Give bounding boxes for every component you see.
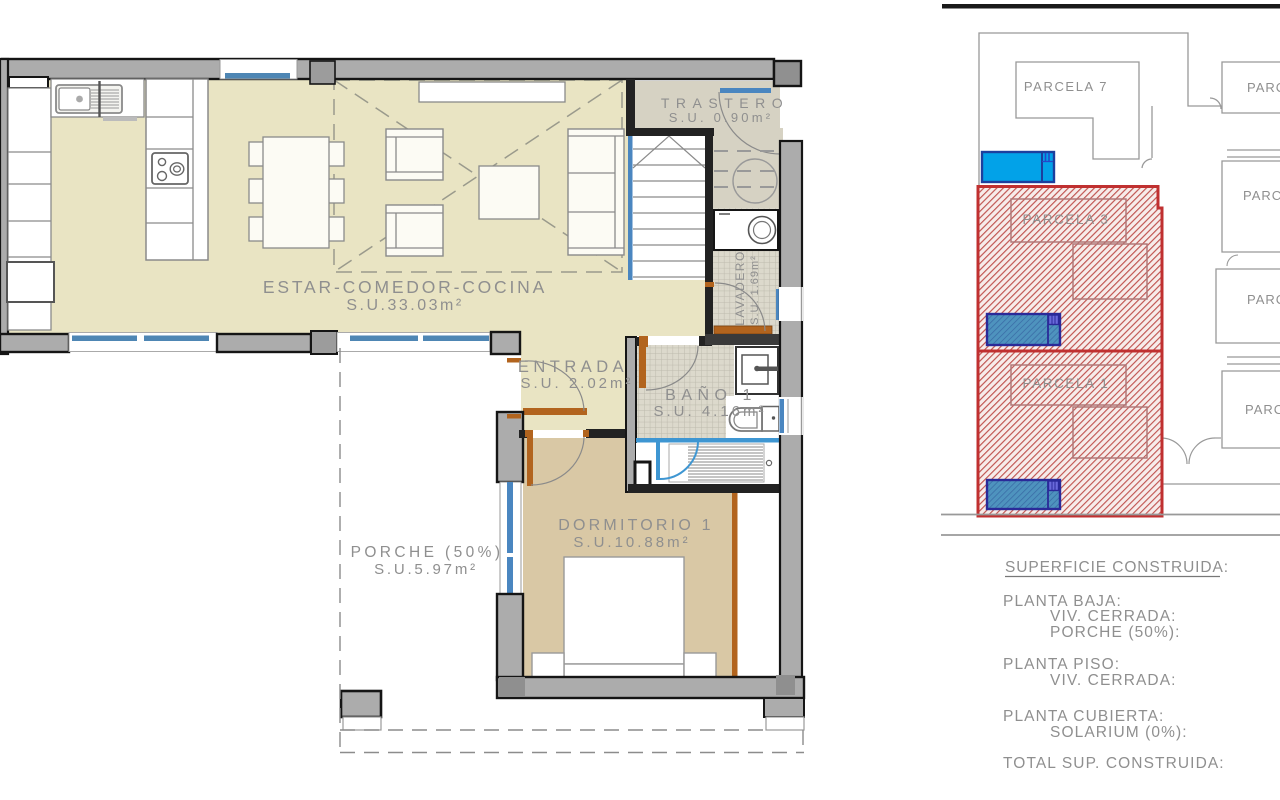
svg-text:LAVADERO: LAVADERO — [733, 250, 747, 326]
svg-text:SOLARIUM (0%):: SOLARIUM (0%): — [1050, 724, 1188, 741]
svg-text:TOTAL SUP. CONSTRUIDA:: TOTAL SUP. CONSTRUIDA: — [1003, 755, 1225, 772]
svg-text:PARC: PARC — [1247, 292, 1280, 307]
svg-text:S.U.33.03m²: S.U.33.03m² — [346, 297, 463, 314]
svg-text:PARCELA 7: PARCELA 7 — [1024, 79, 1108, 94]
svg-text:BAÑO 1: BAÑO 1 — [665, 384, 757, 404]
svg-text:PARC: PARC — [1243, 188, 1280, 203]
svg-text:PARC: PARC — [1247, 80, 1280, 95]
svg-text:S.U.10.88m²: S.U.10.88m² — [573, 534, 690, 551]
svg-text:PARCELA 1: PARCELA 1 — [1023, 376, 1110, 391]
svg-text:DORMITORIO 1: DORMITORIO 1 — [558, 517, 713, 534]
svg-text:PARCELA 3: PARCELA 3 — [1023, 212, 1110, 227]
svg-text:ESTAR-COMEDOR-COCINA: ESTAR-COMEDOR-COCINA — [263, 277, 547, 297]
svg-text:VIV. CERRADA:: VIV. CERRADA: — [1050, 672, 1177, 689]
svg-text:PORCHE (50%): PORCHE (50%) — [351, 544, 504, 561]
svg-text:VIV. CERRADA:: VIV. CERRADA: — [1050, 608, 1177, 625]
svg-text:ENTRADA: ENTRADA — [518, 358, 628, 376]
svg-text:S.U. 0.90m²: S.U. 0.90m² — [669, 110, 774, 125]
svg-text:PARC: PARC — [1245, 402, 1280, 417]
svg-text:S.U. 4.16m²: S.U. 4.16m² — [653, 403, 766, 420]
svg-text:SUPERFICIE CONSTRUIDA:: SUPERFICIE CONSTRUIDA: — [1005, 559, 1229, 576]
svg-text:S.U. 1.69m²: S.U. 1.69m² — [749, 255, 761, 325]
svg-text:TRASTERO: TRASTERO — [661, 95, 789, 111]
svg-text:S.U. 2.02m²: S.U. 2.02m² — [520, 375, 633, 392]
svg-text:PORCHE (50%):: PORCHE (50%): — [1050, 624, 1181, 641]
svg-text:S.U.5.97m²: S.U.5.97m² — [374, 561, 478, 578]
svg-text:PLANTA PISO:: PLANTA PISO: — [1003, 656, 1120, 673]
svg-text:PLANTA CUBIERTA:: PLANTA CUBIERTA: — [1003, 708, 1164, 725]
